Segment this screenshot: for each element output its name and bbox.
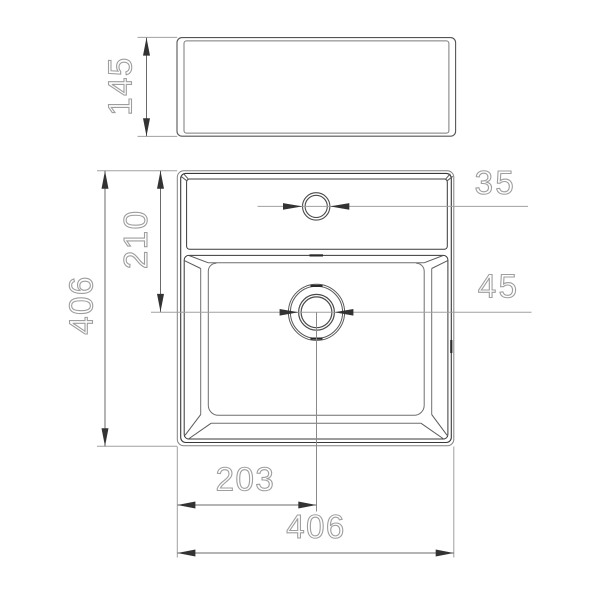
svg-text:145: 145 [101,56,138,116]
svg-text:406: 406 [286,508,346,545]
svg-text:203: 203 [216,460,276,497]
svg-text:406: 406 [62,275,99,335]
svg-text:35: 35 [475,164,517,201]
svg-text:45: 45 [478,268,520,305]
svg-text:210: 210 [117,210,154,270]
